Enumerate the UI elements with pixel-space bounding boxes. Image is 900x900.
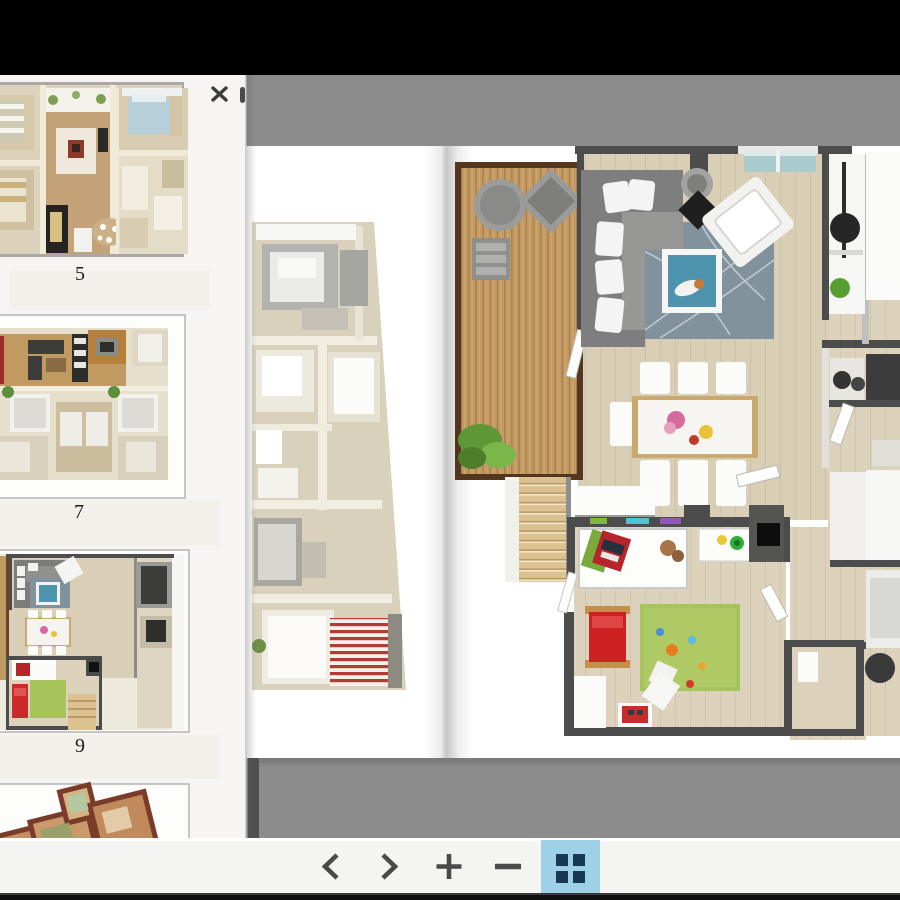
svg-text:5: 5 bbox=[75, 263, 85, 285]
svg-text:9: 9 bbox=[75, 735, 85, 757]
svg-text:7: 7 bbox=[74, 501, 84, 523]
